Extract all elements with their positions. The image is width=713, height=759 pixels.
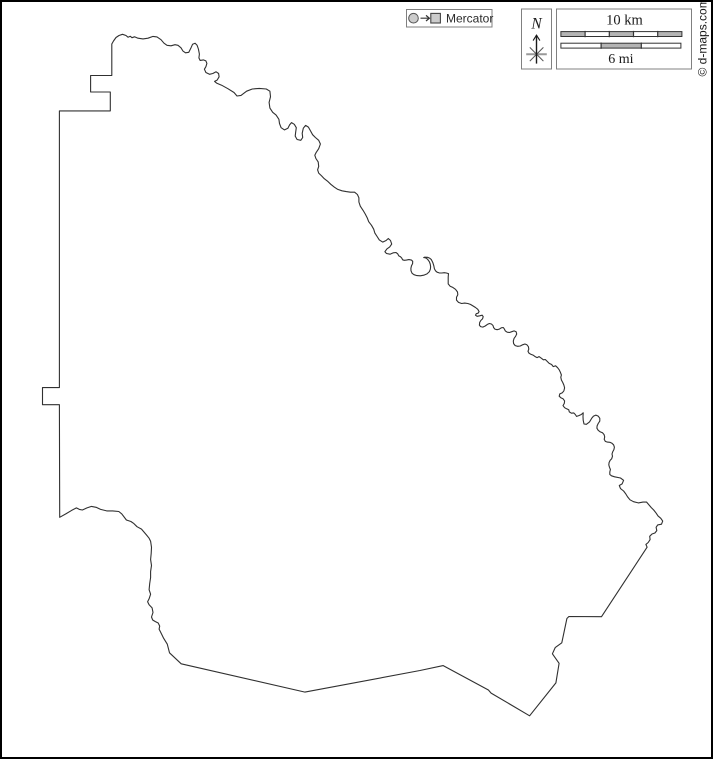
svg-text:6 mi: 6 mi	[608, 52, 633, 67]
svg-text:Mercator: Mercator	[446, 12, 493, 26]
svg-text:10 km: 10 km	[606, 13, 643, 29]
svg-text:© d-maps.com: © d-maps.com	[695, 0, 709, 77]
svg-text:N: N	[530, 16, 543, 33]
